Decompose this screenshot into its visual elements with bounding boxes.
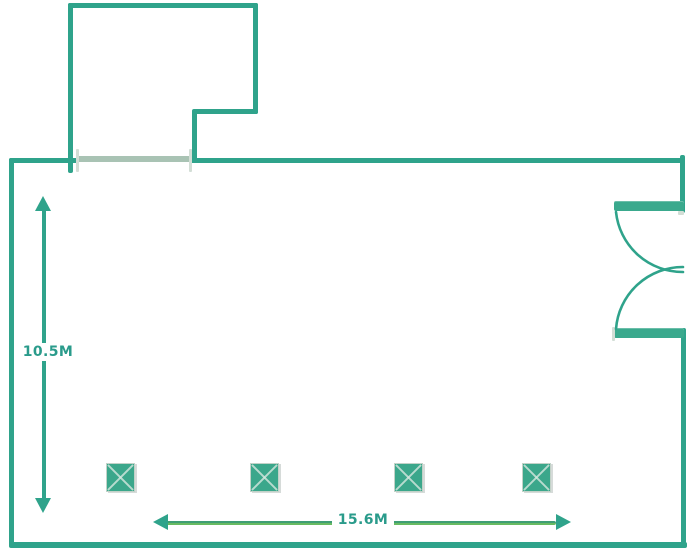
wall-right-lower <box>681 328 686 548</box>
column <box>522 463 551 492</box>
wall-alcove-top <box>68 3 258 8</box>
opening-jamb-tick-right <box>189 149 192 172</box>
opening-jamb-tick-left <box>76 149 79 172</box>
column-cross-icon <box>395 464 422 491</box>
column <box>394 463 423 492</box>
wall-alcove-step-v <box>192 109 197 163</box>
arrow-left-icon <box>153 514 168 530</box>
arrow-down-icon <box>35 498 51 513</box>
width-dimension-label: 15.6M <box>332 511 394 529</box>
door-swing-arc-top <box>616 212 683 272</box>
column <box>250 463 279 492</box>
column <box>106 463 135 492</box>
wall-top-main <box>190 158 684 163</box>
wall-opening <box>77 156 190 162</box>
wall-alcove-step-h <box>194 109 258 114</box>
column-cross-icon <box>251 464 278 491</box>
floor-plan-canvas: 10.5M 15.6M <box>0 0 690 559</box>
arrow-up-icon <box>35 196 51 211</box>
door-leaf-top <box>614 201 684 211</box>
wall-bottom <box>9 542 687 548</box>
column-cross-icon <box>523 464 550 491</box>
door-swing-arc-bottom <box>616 267 683 329</box>
door-swing-arcs <box>0 0 690 559</box>
height-dimension-label: 10.5M <box>18 343 78 361</box>
wall-left <box>9 158 14 547</box>
door-leaf-bottom <box>614 328 684 338</box>
door-jamb-tick-bottom <box>612 327 615 341</box>
door-jamb-tick-top <box>678 211 684 215</box>
wall-alcove-right <box>253 3 258 114</box>
column-cross-icon <box>107 464 134 491</box>
wall-top-left-stub <box>9 158 78 163</box>
wall-alcove-left <box>68 3 73 173</box>
arrow-right-icon <box>556 514 571 530</box>
